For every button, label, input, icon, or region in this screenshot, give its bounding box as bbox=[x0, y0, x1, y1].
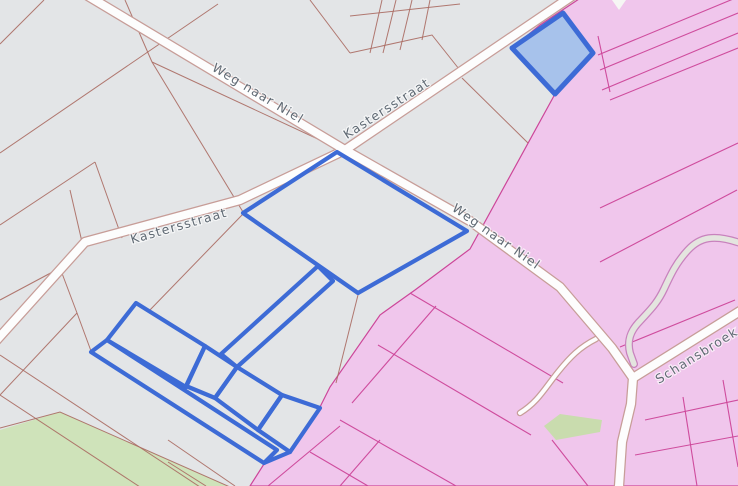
cadastral-map-canvas[interactable]: Weg naar Niel Kastersstraat Kastersstraa… bbox=[0, 0, 738, 486]
map-viewport[interactable]: Weg naar Niel Kastersstraat Kastersstraa… bbox=[0, 0, 738, 486]
